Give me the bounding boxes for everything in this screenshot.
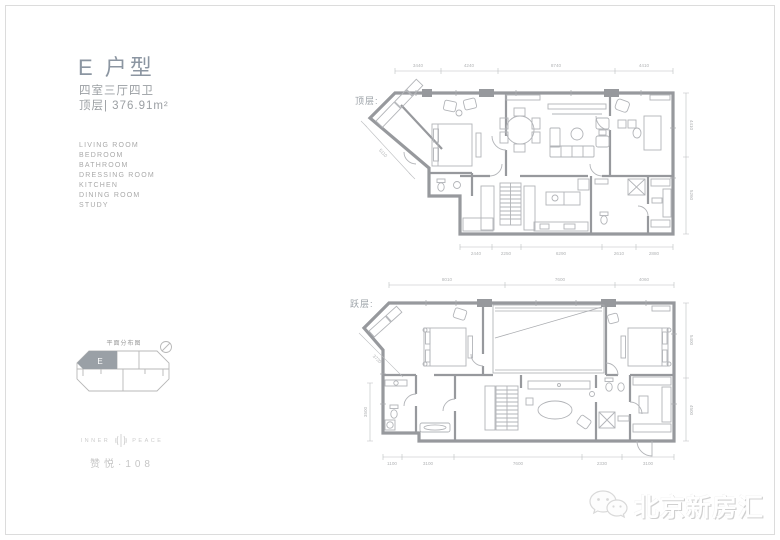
lower-family-room-furniture [526,381,595,430]
dim-label: 2610 [614,251,625,256]
dim-label: 7600 [555,277,566,282]
upper-balcony-hatch [463,218,493,231]
dim-label: 7600 [513,461,524,466]
lower-right-bathroom-fixtures [599,378,629,428]
lower-right-bedroom-furniture [607,306,671,366]
dim-label: 3500 [363,406,368,417]
unit-area-subtitle: 顶层| 376.91m² [79,97,169,113]
key-plan-title: 平面分布图 [106,339,141,347]
lower-left-bedroom-furniture [423,307,473,366]
watermark-text: 北京新房汇 [634,488,764,524]
double-height-void [493,305,604,373]
dim-label: 2880 [649,251,660,256]
room-name-list: LIVING ROOM BEDROOM BATHROOM DRESSING RO… [79,141,155,211]
dim-label: 8740 [551,63,562,68]
room-list-item: KITCHEN [79,181,155,191]
lower-dressing-room-wardrobes [633,377,671,432]
room-list-item: BEDROOM [79,151,155,161]
lower-entry-closets [369,306,402,337]
brand-english-right: PEACE [132,438,163,444]
room-list-item: DINING ROOM [79,191,155,201]
dim-label: 8010 [442,277,453,282]
upper-study-furniture [614,95,670,150]
dim-label: 3100 [423,461,434,466]
brand-english-left: INNER [81,438,111,444]
dim-label: 1100 [387,461,397,466]
brand-emblem-icon [115,433,127,448]
brand-logo: INNER PEACE 赞悦·108 [66,433,178,470]
dim-label: 2330 [597,461,608,466]
dim-label: 3100 [643,461,654,466]
dim-label: 4500 [689,405,694,416]
upper-plan-walls [370,89,676,234]
dim-label: 6290 [556,251,567,256]
room-list-item: STUDY [79,201,155,211]
watermark: 北京新房汇 [587,488,764,524]
lower-cabinet-hatch [485,386,495,430]
room-list-item: LIVING ROOM [79,141,155,151]
upper-living-furniture [548,104,609,157]
dim-label: 4240 [464,63,475,68]
dim-label: 4060 [639,277,650,282]
dim-label: 4410 [639,63,650,68]
brand-chinese-name: 赞悦·108 [66,455,178,470]
north-compass-icon [161,342,172,353]
upper-bedroom-furniture [432,98,481,192]
dim-label: 2440 [471,251,482,256]
unit-e-label: E [97,357,102,366]
dim-label: 4410 [689,120,694,131]
upper-stairs [500,183,521,225]
lower-stairs [496,386,518,430]
dim-label: 3440 [413,63,424,68]
key-plan-diagram: 平面分布图 E [68,336,180,398]
upper-kitchen-furniture [534,179,589,231]
floorplan-flyer-page: { "header": { "title": "E 户型", "layout":… [0,0,780,540]
upper-cabinet-hatch-right [524,186,535,230]
unit-e-marker: E [77,351,117,369]
dim-label: 2250 [501,251,512,256]
brand-english-line: INNER PEACE [66,433,178,448]
upper-floor-plan: 3440 4240 8740 4410 2440 2250 6290 2610 … [356,58,696,263]
unit-title: E 户型 [78,50,155,82]
unit-layout-subtitle: 四室三厅四卫 [79,82,154,98]
dim-label: 5260 [689,190,694,201]
lower-floor-plan: 8010 7600 4060 1100 3100 7600 2330 3100 … [356,274,696,479]
lower-left-bathroom-fixtures [385,380,450,432]
upper-cabinet-hatch-left [481,186,494,230]
dim-label: 5400 [689,335,694,346]
room-list-item: DRESSING ROOM [79,171,155,181]
room-list-item: BATHROOM [79,161,155,171]
upper-bathroom-fixtures [595,179,671,227]
wechat-icon [587,488,629,524]
